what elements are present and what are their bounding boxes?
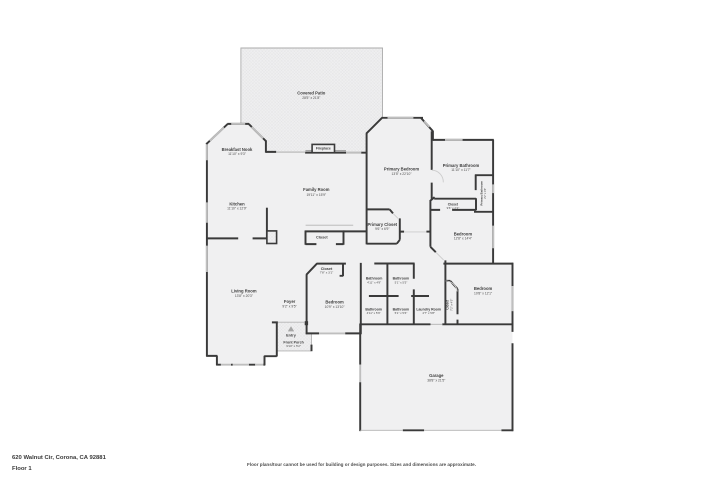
- svg-text:9'10" x 5'2": 9'10" x 5'2": [286, 344, 301, 348]
- svg-text:11'10" x 12'9": 11'10" x 12'9": [227, 207, 247, 211]
- svg-text:Fireplace: Fireplace: [316, 147, 331, 151]
- svg-text:Bedroom: Bedroom: [474, 286, 493, 291]
- svg-text:9'2" x 9'5": 9'2" x 9'5": [282, 304, 297, 308]
- svg-text:4'11" x 4'9": 4'11" x 4'9": [367, 280, 381, 284]
- svg-text:7'8" x 3'1": 7'8" x 3'1": [320, 270, 334, 274]
- svg-text:5'1" x 5'6": 5'1" x 5'6": [395, 311, 408, 315]
- svg-text:Living Room: Living Room: [231, 288, 257, 293]
- svg-text:Primary Bathroom: Primary Bathroom: [443, 163, 480, 168]
- svg-text:Closet: Closet: [316, 236, 328, 240]
- svg-text:4'11" x 5'6": 4'11" x 5'6": [367, 311, 381, 315]
- svg-text:19'11" x 15'9": 19'11" x 15'9": [306, 193, 326, 197]
- svg-text:28'5" x 21'8": 28'5" x 21'8": [302, 96, 321, 100]
- svg-text:12'8" x 14'4": 12'8" x 14'4": [454, 237, 473, 241]
- svg-text:Covered Patio: Covered Patio: [297, 90, 326, 95]
- svg-text:10'8" x 12'1": 10'8" x 12'1": [474, 291, 493, 295]
- svg-text:Primary Closet: Primary Closet: [368, 222, 398, 227]
- svg-text:13'5" x 22'10": 13'5" x 22'10": [392, 172, 413, 176]
- svg-text:13'8" x 20'3": 13'8" x 20'3": [235, 294, 254, 298]
- svg-text:Garage: Garage: [429, 373, 444, 378]
- svg-text:9'6" x 6'9": 9'6" x 6'9": [375, 227, 390, 231]
- svg-text:Floor 1: Floor 1: [12, 466, 32, 472]
- svg-text:Floor plans/tour cannot be use: Floor plans/tour cannot be used for buil…: [247, 462, 476, 467]
- svg-text:620 Walnut Cir, Corona, CA 928: 620 Walnut Cir, Corona, CA 92881: [12, 455, 107, 461]
- svg-text:Family Room: Family Room: [303, 187, 330, 192]
- svg-text:9'6" x 2'2": 9'6" x 2'2": [447, 206, 460, 210]
- svg-text:11'10" x 11'7": 11'10" x 11'7": [451, 168, 471, 172]
- svg-text:38'8" x 21'5": 38'8" x 21'5": [427, 379, 446, 383]
- svg-text:4'7" x 5'8": 4'7" x 5'8": [422, 311, 435, 315]
- svg-text:2'2" x 4'9": 2'2" x 4'9": [484, 188, 487, 199]
- svg-text:Bedroom: Bedroom: [325, 300, 344, 305]
- svg-text:10'9" x 13'10": 10'9" x 13'10": [325, 305, 346, 309]
- svg-text:Foyer: Foyer: [284, 299, 296, 304]
- svg-text:Breakfast Nook: Breakfast Nook: [222, 147, 253, 152]
- svg-text:Primary Bathroom: Primary Bathroom: [480, 181, 484, 206]
- svg-text:7'2" x 4'5": 7'2" x 4'5": [450, 299, 454, 311]
- svg-text:5'1" x 5'5": 5'1" x 5'5": [395, 280, 408, 284]
- svg-text:Entry: Entry: [286, 333, 297, 337]
- svg-text:11'10" x 9'3": 11'10" x 9'3": [228, 152, 247, 156]
